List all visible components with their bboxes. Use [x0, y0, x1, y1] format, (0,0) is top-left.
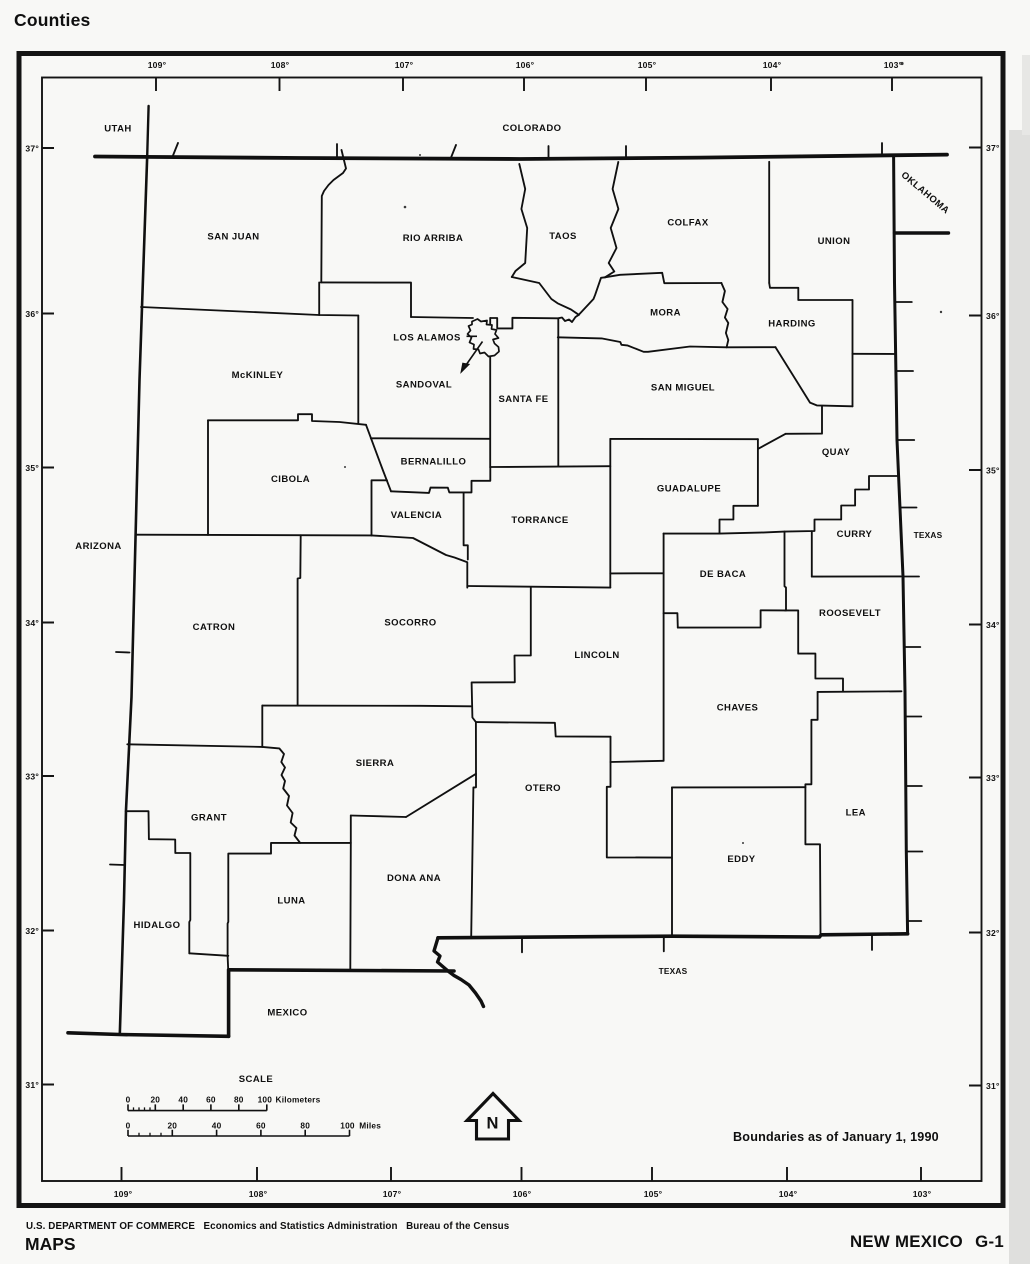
svg-text:OTERO: OTERO	[525, 783, 561, 794]
svg-text:TORRANCE: TORRANCE	[511, 515, 568, 526]
svg-text:107°: 107°	[383, 1189, 402, 1199]
svg-text:40: 40	[178, 1095, 188, 1105]
svg-text:BERNALILLO: BERNALILLO	[401, 457, 467, 468]
svg-text:40: 40	[212, 1120, 222, 1130]
svg-text:107°: 107°	[395, 60, 414, 70]
svg-text:TEXAS: TEXAS	[914, 530, 943, 540]
svg-text:ARIZONA: ARIZONA	[75, 541, 121, 552]
svg-text:ROOSEVELT: ROOSEVELT	[819, 608, 881, 619]
svg-text:UNION: UNION	[818, 236, 851, 247]
svg-text:109°: 109°	[148, 60, 167, 70]
svg-text:DONA ANA: DONA ANA	[387, 873, 441, 884]
svg-text:VALENCIA: VALENCIA	[391, 510, 442, 521]
svg-text:108°: 108°	[271, 60, 290, 70]
svg-text:104°: 104°	[763, 60, 782, 70]
svg-text:TEXAS: TEXAS	[659, 966, 688, 976]
svg-text:McKINLEY: McKINLEY	[232, 370, 284, 381]
svg-text:36°: 36°	[986, 311, 1000, 321]
svg-text:Miles: Miles	[359, 1120, 381, 1130]
svg-text:Kilometers: Kilometers	[276, 1095, 321, 1105]
svg-text:60: 60	[256, 1120, 266, 1130]
svg-text:GRANT: GRANT	[191, 813, 227, 824]
svg-text:SOCORRO: SOCORRO	[384, 618, 436, 629]
svg-text:TAOS: TAOS	[549, 231, 576, 242]
svg-text:106°: 106°	[516, 60, 535, 70]
svg-text:G-1: G-1	[975, 1232, 1004, 1251]
svg-text:33°: 33°	[986, 773, 1000, 783]
svg-text:CURRY: CURRY	[837, 529, 873, 540]
svg-text:34°: 34°	[986, 620, 1000, 630]
svg-text:20: 20	[150, 1095, 160, 1105]
svg-text:COLORADO: COLORADO	[502, 123, 561, 134]
svg-text:108°: 108°	[249, 1189, 268, 1199]
svg-text:32°: 32°	[25, 926, 39, 936]
svg-text:HARDING: HARDING	[768, 319, 815, 330]
svg-text:0: 0	[126, 1120, 131, 1130]
svg-text:N: N	[487, 1115, 499, 1133]
svg-text:U.S. DEPARTMENT OF COMMERCE: U.S. DEPARTMENT OF COMMERCE Economics an…	[26, 1221, 510, 1232]
svg-text:33°: 33°	[25, 772, 39, 782]
svg-text:35°: 35°	[25, 463, 39, 473]
svg-text:34°: 34°	[25, 618, 39, 628]
svg-text:109°: 109°	[114, 1189, 133, 1199]
svg-text:80: 80	[234, 1095, 244, 1105]
svg-text:HIDALGO: HIDALGO	[134, 920, 181, 931]
svg-text:31°: 31°	[986, 1081, 1000, 1091]
svg-text:105°: 105°	[638, 60, 657, 70]
svg-text:LOS ALAMOS: LOS ALAMOS	[393, 333, 460, 344]
svg-text:LEA: LEA	[846, 808, 866, 819]
svg-text:SAN JUAN: SAN JUAN	[207, 232, 259, 243]
svg-text:103°: 103°	[884, 60, 903, 70]
svg-text:SIERRA: SIERRA	[356, 758, 395, 769]
svg-text:60: 60	[206, 1095, 216, 1105]
svg-text:35°: 35°	[986, 466, 1000, 476]
svg-text:0: 0	[126, 1095, 131, 1105]
svg-text:GUADALUPE: GUADALUPE	[657, 484, 721, 495]
svg-text:37°: 37°	[986, 143, 1000, 153]
svg-text:SANDOVAL: SANDOVAL	[396, 380, 452, 391]
svg-text:31°: 31°	[25, 1080, 39, 1090]
svg-text:37°: 37°	[25, 144, 39, 154]
svg-text:LINCOLN: LINCOLN	[574, 650, 619, 661]
svg-text:MORA: MORA	[650, 308, 681, 319]
svg-text:32°: 32°	[986, 928, 1000, 938]
svg-text:MEXICO: MEXICO	[267, 1008, 307, 1019]
svg-text:MAPS: MAPS	[25, 1234, 76, 1254]
svg-text:DE BACA: DE BACA	[700, 569, 746, 580]
svg-text:100: 100	[340, 1120, 355, 1130]
svg-text:103°: 103°	[913, 1189, 932, 1199]
svg-text:NEW MEXICO: NEW MEXICO	[850, 1232, 963, 1251]
svg-text:UTAH: UTAH	[104, 124, 131, 135]
svg-text:CHAVES: CHAVES	[717, 703, 759, 714]
svg-text:CATRON: CATRON	[193, 622, 236, 633]
svg-text:Counties: Counties	[14, 10, 91, 30]
svg-text:COLFAX: COLFAX	[667, 218, 708, 229]
svg-text:106°: 106°	[513, 1189, 532, 1199]
svg-text:EDDY: EDDY	[727, 854, 755, 865]
svg-text:CIBOLA: CIBOLA	[271, 474, 310, 485]
svg-text:36°: 36°	[25, 309, 39, 319]
svg-text:SAN MIGUEL: SAN MIGUEL	[651, 383, 715, 394]
svg-text:105°: 105°	[644, 1189, 663, 1199]
svg-text:100: 100	[258, 1095, 273, 1105]
svg-text:80: 80	[300, 1120, 310, 1130]
svg-text:20: 20	[167, 1120, 177, 1130]
svg-text:RIO ARRIBA: RIO ARRIBA	[403, 233, 464, 244]
svg-text:LUNA: LUNA	[277, 896, 305, 907]
svg-text:SANTA FE: SANTA FE	[498, 394, 548, 405]
svg-text:104°: 104°	[779, 1189, 798, 1199]
svg-text:QUAY: QUAY	[822, 447, 851, 458]
svg-text:SCALE: SCALE	[239, 1074, 273, 1085]
svg-text:Boundaries as of January 1, 19: Boundaries as of January 1, 1990	[733, 1130, 939, 1144]
